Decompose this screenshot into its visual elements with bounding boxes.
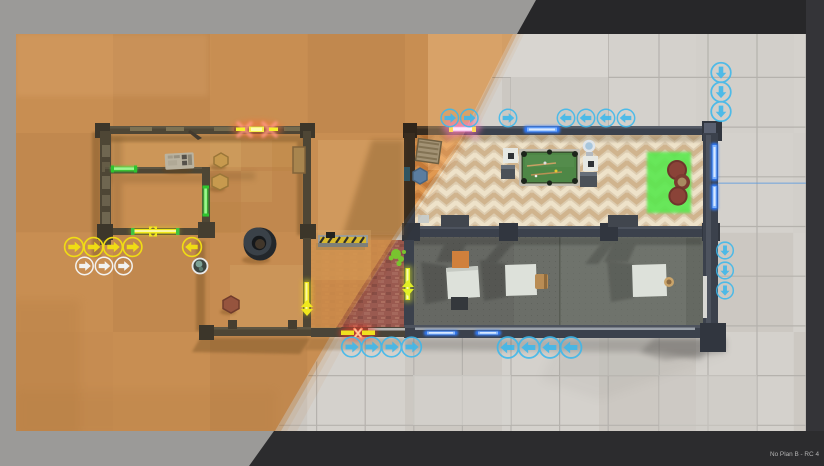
svg-text:No Plan B - RC 4: No Plan B - RC 4 xyxy=(770,451,819,458)
